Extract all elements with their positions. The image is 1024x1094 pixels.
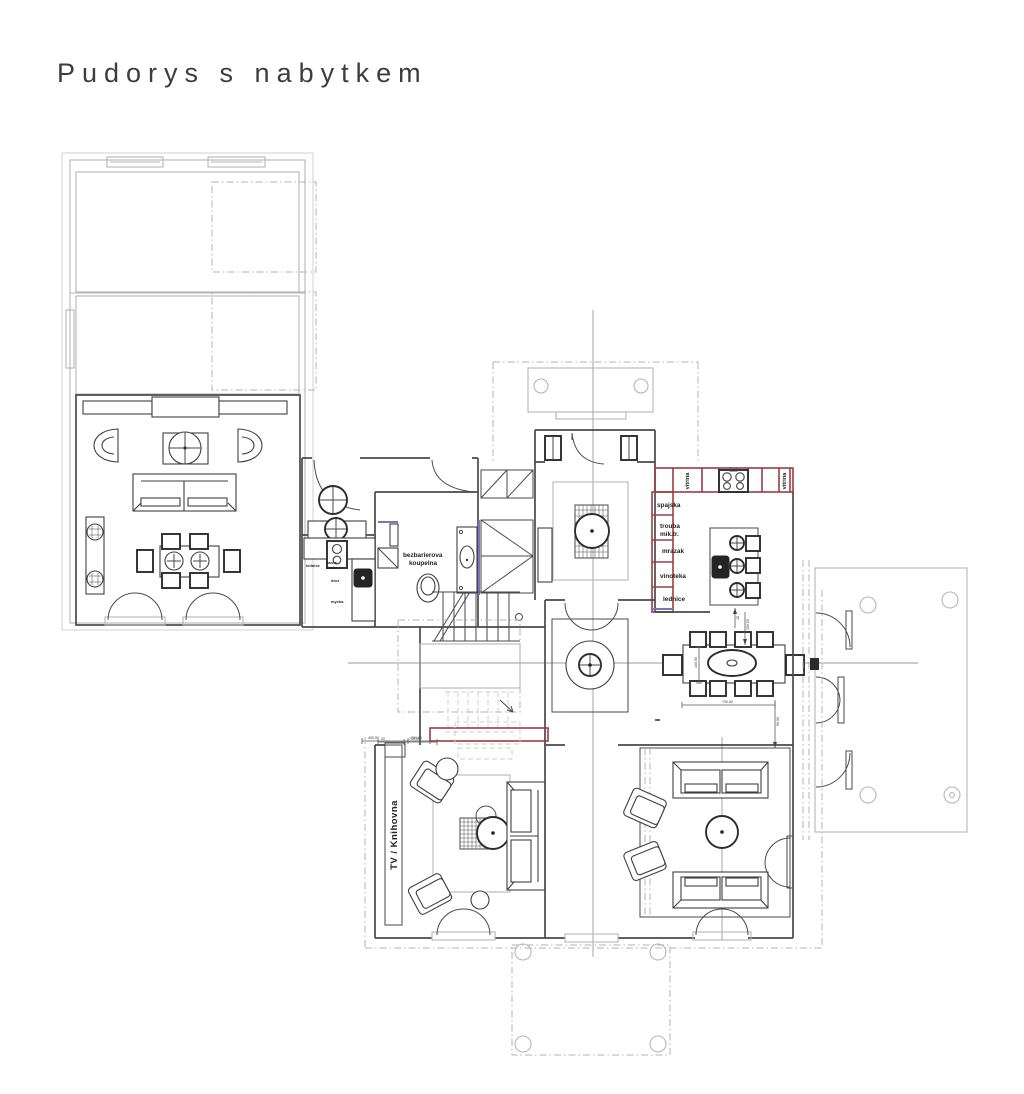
entry-porch: [528, 368, 653, 419]
center-double-door: [565, 603, 618, 630]
staircase: 450,50 750,50: [362, 592, 548, 757]
side-table: [436, 758, 458, 780]
cooktop: [719, 468, 748, 492]
roof-opening-2: [212, 292, 316, 390]
terrace-door-2: [816, 677, 844, 723]
coffee-table: [163, 432, 208, 464]
round-hall-table: [566, 641, 614, 689]
vitrina-left-label: vitrina: [685, 472, 691, 490]
terrace-door-3: [816, 751, 852, 789]
pantry-label: spajska: [657, 502, 681, 509]
sofa-top: [673, 762, 768, 798]
kitchen-island: 45: [710, 528, 760, 628]
tv-library-room: TV / Knihovna 20 750,50: [375, 737, 545, 940]
bathroom: bezbarierova koupelna: [378, 460, 479, 602]
closets: [481, 470, 533, 593]
kitchen: vitrina vitrina spajska trouba mik.tr. m…: [652, 468, 793, 628]
kitchenette-hob-label-2: deska: [326, 565, 338, 570]
vanity: [457, 527, 477, 593]
tv-grid-table: [460, 806, 509, 849]
toilet: [417, 574, 439, 602]
sofa-bottom: [673, 872, 768, 908]
stool: [471, 891, 489, 909]
oven-label-1: trouba: [660, 523, 680, 530]
kitchenette-dishwasher-label: mycka: [331, 599, 344, 604]
french-door-left: [105, 593, 165, 625]
center-hall: [545, 600, 655, 712]
small-dining-set: [137, 534, 240, 588]
axis-wall-marker: [810, 658, 819, 670]
entry-door: [572, 433, 604, 464]
lr-armchair-bottom: [623, 840, 668, 881]
tv-room-door: [432, 909, 495, 940]
kitchenette-sink-label: drez: [331, 578, 339, 583]
tv-dim-a: 20: [381, 737, 385, 741]
entry-cabinet-right: [621, 436, 637, 460]
living-room-door-right: [765, 836, 793, 888]
entry-cabinet-left: [545, 436, 561, 460]
left-living-room: [76, 395, 300, 625]
roof-opening-1: [212, 182, 316, 272]
entry-hall-table: [575, 505, 609, 558]
fridge-label: lednice: [663, 596, 685, 603]
tv-wall: TV / Knihovna: [385, 745, 402, 925]
tv-armchair-bottom: [407, 872, 453, 915]
floorplan-canvas: Pudorys s nabytkem: [0, 0, 1024, 1094]
bathroom-label-2: koupelna: [409, 560, 437, 567]
new-wall-red: [430, 728, 548, 741]
bottom-porch: [512, 934, 670, 1055]
entry-bench: [538, 528, 552, 582]
dining-dim-top: 150,50: [746, 619, 750, 630]
bathroom-label-1: bezbarierova: [403, 552, 443, 559]
kitchenette-fridge-label: lednice: [306, 563, 321, 568]
sofa: [133, 474, 236, 511]
freezer-label: mrazak: [662, 548, 684, 555]
dining-area: 150,50 100,50 750,50 90,50: [655, 612, 804, 838]
lr-armchair-top: [622, 787, 667, 829]
hall-table: [319, 486, 347, 514]
kitchenette: lednice varna deska drez mycka: [304, 538, 375, 621]
round-coffee-table: [706, 816, 738, 848]
dining-table: [683, 645, 785, 683]
tv-dim-b: 750,50: [409, 737, 420, 741]
dining-dim-right: 90,50: [776, 717, 780, 726]
wine-label: vinoteka: [660, 573, 686, 580]
shower: [378, 522, 398, 568]
stairs-dim-a: 450,50: [368, 736, 379, 740]
french-door-right: [183, 593, 243, 625]
hall-counter: [308, 518, 366, 540]
sideboard: [83, 397, 287, 417]
kitchenette-sink: [354, 569, 372, 587]
tv-wall-label: TV / Knihovna: [389, 800, 400, 870]
bar-stools: [730, 536, 760, 598]
vitrina-right-label: vitrina: [782, 472, 788, 490]
terrace-door-1: [816, 611, 852, 649]
armchair-left: [94, 429, 118, 462]
island-dim-label: 45: [736, 616, 740, 620]
tv-sofa: [507, 782, 545, 890]
plant-cabinet: [86, 517, 104, 594]
dining-dim-width: 750,50: [722, 700, 733, 704]
floorplan-drawing: lednice varna deska drez mycka bezbarier…: [0, 0, 1024, 1094]
right-terrace: [803, 560, 967, 840]
oven-label-2: mik.tr.: [660, 531, 679, 538]
dining-dim-depth: 100,50: [694, 657, 698, 668]
armchair-right: [238, 429, 262, 462]
